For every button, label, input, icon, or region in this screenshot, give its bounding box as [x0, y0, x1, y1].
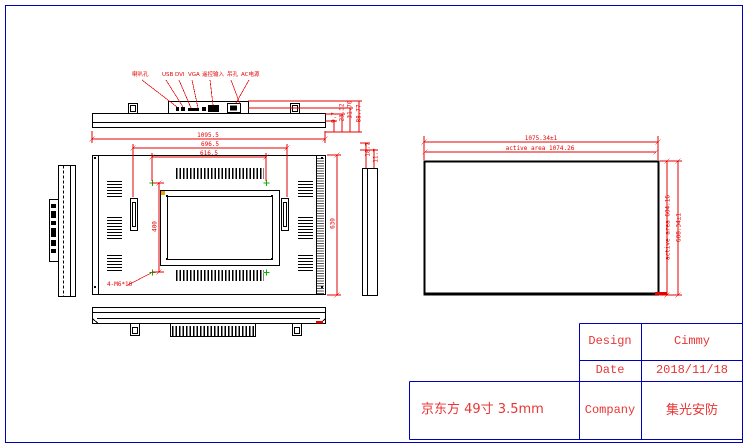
side-connector-ports [51, 204, 56, 253]
connector-label: 吊孔 [227, 72, 238, 78]
panel-edge-view [363, 169, 378, 296]
connector-label: USB [162, 72, 173, 78]
title-block-date-label: Date [580, 363, 640, 377]
title-block-company-label: Company [580, 403, 640, 417]
title-block-design-value: Cimmy [642, 334, 742, 348]
panel-origin-marker [161, 191, 165, 195]
dim-vesa-width: 616.5 [179, 150, 239, 157]
top-view-dimensions [142, 80, 362, 132]
dim-thickness: 88.77 [356, 94, 363, 134]
dim-panel-edge: 11.7 [373, 136, 380, 176]
connector-label: VGA [188, 72, 200, 78]
front-view [424, 162, 659, 295]
drawing-linework [0, 0, 748, 448]
dim-mount-holes: 4-M6*10 [107, 281, 132, 288]
back-view [93, 156, 326, 295]
title-block-company-value: 集光安防 [642, 403, 742, 418]
dim-outline-height: 608.34±1 [676, 188, 683, 268]
dim-thickness: 23.32 [339, 93, 346, 133]
dim-handle-spacing: 696.5 [180, 141, 240, 148]
connector-label: 遥控输入 [202, 72, 224, 78]
title-block-design-label: Design [580, 334, 640, 348]
dim-active-height: active area 604.16 [665, 188, 672, 268]
connector-label: DVI [175, 72, 185, 78]
connector-label: 喇叭孔 [132, 72, 149, 78]
drawing-sheet: 喇叭孔 USB DVI VGA 遥控输入 吊孔 AC电源 9.7 23.32 3… [0, 0, 748, 448]
dim-outline-width: 1075.34±1 [491, 135, 591, 142]
product-title: 京东方 49寸 3.5mm [421, 402, 544, 417]
dim-panel-edge: 18.7 [365, 130, 372, 170]
dim-thickness: 9.7 [331, 98, 338, 138]
connector-label: AC电源 [241, 72, 260, 78]
dim-active-width: active area 1074.26 [480, 145, 600, 152]
dim-vesa-height: 400 [152, 207, 159, 247]
bottom-view [93, 308, 326, 337]
dim-overall-width: 1095.5 [178, 132, 238, 139]
dim-thickness: 31.70 [347, 90, 354, 130]
bottom-corner-mark [316, 321, 323, 324]
title-block-date-value: 2018/11/18 [642, 363, 742, 377]
front-view-dimensions [422, 136, 683, 298]
dim-overall-height: 630 [330, 204, 337, 244]
